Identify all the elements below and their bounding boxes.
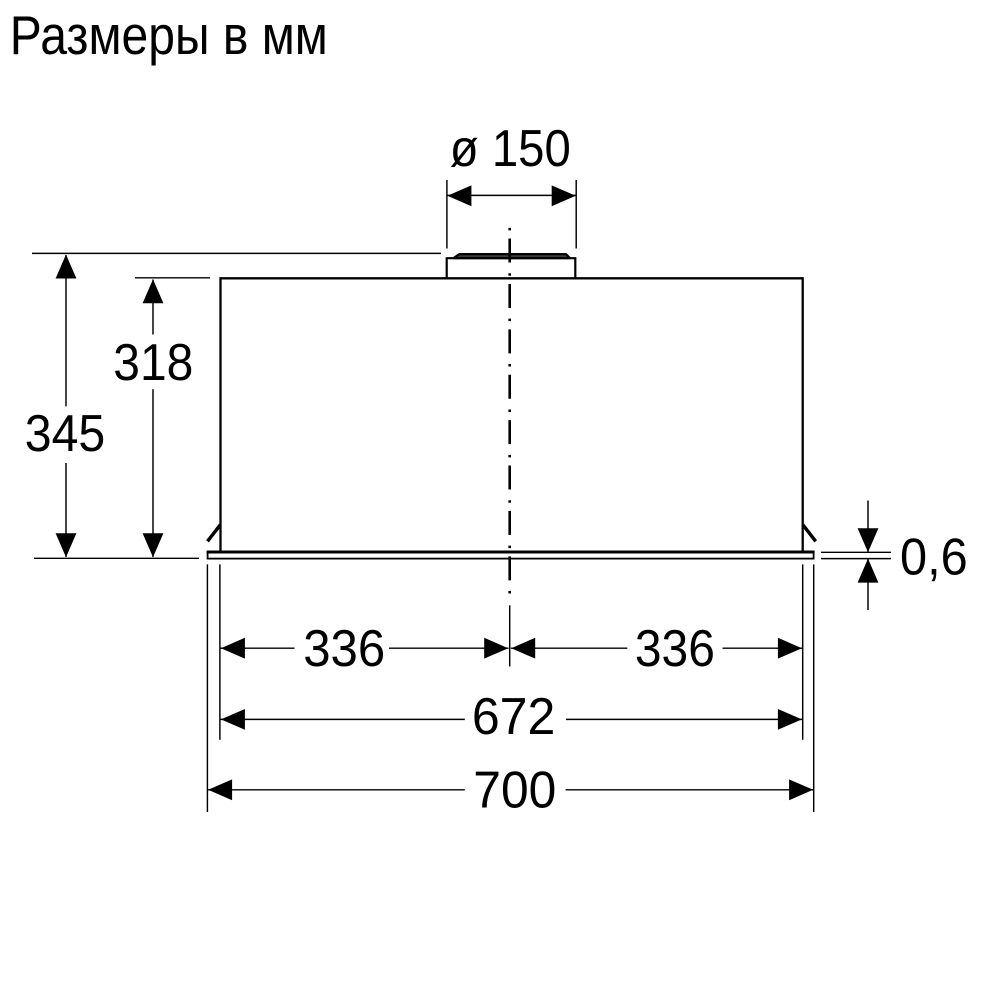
svg-text:ø 150: ø 150 xyxy=(450,119,571,177)
svg-text:Размеры в мм: Размеры в мм xyxy=(10,4,328,66)
svg-text:318: 318 xyxy=(113,333,193,391)
svg-text:336: 336 xyxy=(635,619,715,677)
svg-text:336: 336 xyxy=(303,619,385,677)
svg-text:700: 700 xyxy=(473,761,556,819)
svg-text:672: 672 xyxy=(472,687,556,745)
svg-text:0,6: 0,6 xyxy=(900,528,968,586)
svg-text:345: 345 xyxy=(25,404,106,462)
